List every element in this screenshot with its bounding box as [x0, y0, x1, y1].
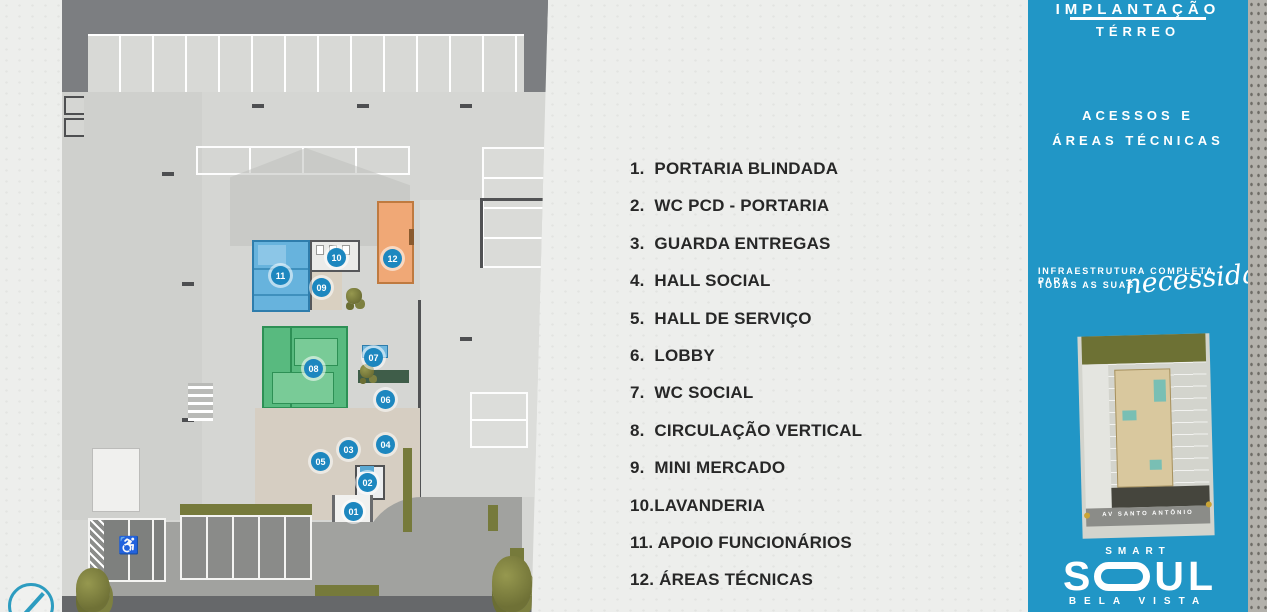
hedge — [315, 585, 379, 596]
legend-item-9: 9. MINI MERCADO — [630, 449, 1020, 486]
plan-marker-04: 04 — [376, 435, 395, 454]
parking-row-bottom — [180, 515, 312, 580]
compass-north-icon — [8, 583, 54, 612]
legend-list: 1. PORTARIA BLINDADA 2. WC PCD - PORTARI… — [630, 150, 1020, 599]
legend-item-10: 10.LAVANDERIA — [630, 487, 1020, 524]
plan-marker-01: 01 — [344, 502, 363, 521]
plan-marker-05: 05 — [311, 452, 330, 471]
section-label-line2: ÁREAS TÉCNICAS — [1028, 133, 1248, 148]
site-minimap: AV SANTO ANTÔNIO — [1077, 333, 1214, 538]
logo-letter-l: L — [1188, 558, 1213, 594]
minimap-highlighted-building — [1114, 368, 1173, 487]
inner-wall — [480, 198, 483, 268]
plan-marker-12: 12 — [383, 249, 402, 268]
minimap-green-band — [1081, 333, 1206, 364]
tagline-line2: TODAS AS SUAS — [1038, 280, 1135, 290]
legend-item-7: 7. WC SOCIAL — [630, 374, 1020, 411]
legend-item-8: 8. CIRCULAÇÃO VERTICAL — [630, 412, 1020, 449]
logo-letter-u: U — [1154, 558, 1184, 594]
bush — [76, 568, 110, 612]
legend-item-5: 5. HALL DE SERVIÇO — [630, 300, 1020, 337]
plan-marker-02: 02 — [358, 473, 377, 492]
hedge — [403, 448, 412, 532]
brochure-page: { "legend": { "items": [ "1. PORTARIA BL… — [0, 0, 1267, 612]
floor-plan: ♿ 01 02 03 04 05 06 07 08 09 10 11 12 — [62, 0, 548, 612]
bush — [492, 556, 532, 612]
room-areas-tecnicas — [377, 201, 414, 284]
storage-room — [92, 448, 140, 512]
street-band — [62, 596, 548, 612]
plan-marker-11: 11 — [271, 266, 290, 285]
legend-item-4: 4. HALL SOCIAL — [630, 262, 1020, 299]
parking-row-top — [88, 34, 524, 92]
plan-marker-06: 06 — [376, 390, 395, 409]
sidebar-subtitle: TÉRREO — [1028, 24, 1248, 39]
minimap-sidewalk — [1111, 485, 1209, 508]
hedge — [488, 505, 498, 531]
logo-stadium-o-icon — [1094, 562, 1150, 591]
minimap-corner-dot — [1206, 501, 1212, 507]
logo-smart-text: SMART — [1028, 546, 1248, 557]
legend-item-2: 2. WC PCD - PORTARIA — [630, 187, 1020, 224]
sidebar-panel: IMPLANTAÇÃO TÉRREO ACESSOS E ÁREAS TÉCNI… — [1028, 0, 1248, 612]
parking-column-right — [482, 147, 546, 268]
tree — [346, 288, 362, 304]
plan-marker-07: 07 — [364, 348, 383, 367]
plan-marker-09: 09 — [312, 278, 331, 297]
minimap-left-strip — [1082, 364, 1112, 509]
inner-wall — [482, 198, 548, 201]
hedge — [180, 504, 312, 515]
wheelchair-icon: ♿ — [118, 536, 139, 556]
title-underline — [1070, 17, 1206, 20]
parking-column-right-lower — [470, 392, 528, 448]
legend-item-6: 6. LOBBY — [630, 337, 1020, 374]
tagline-script-word: necessidades — [1123, 254, 1267, 301]
logo-soul-text: S U L — [1028, 558, 1248, 594]
sidebar-title: IMPLANTAÇÃO — [1028, 1, 1248, 18]
legend-item-3: 3. GUARDA ENTREGAS — [630, 225, 1020, 262]
plan-marker-10: 10 — [327, 248, 346, 267]
legend-item-11: 11. APOIO FUNCIONÁRIOS — [630, 524, 1020, 561]
brand-logo: SMART S U L BELA VISTA — [1028, 546, 1248, 607]
left-wall — [62, 0, 88, 92]
wall-notch — [64, 118, 84, 137]
legend-item-12: 12. ÁREAS TÉCNICAS — [630, 561, 1020, 598]
section-label-line1: ACESSOS E — [1028, 108, 1248, 123]
concrete-texture-strip — [1248, 0, 1267, 612]
top-wall — [62, 0, 548, 34]
wall-notch — [64, 96, 84, 115]
legend-item-1: 1. PORTARIA BLINDADA — [630, 150, 1020, 187]
logo-letter-s: S — [1063, 558, 1090, 594]
right-wall — [524, 0, 548, 92]
plan-marker-03: 03 — [339, 440, 358, 459]
stairs-hatch — [188, 383, 213, 421]
logo-bela-vista-text: BELA VISTA — [1028, 596, 1248, 607]
plan-marker-08: 08 — [304, 359, 323, 378]
